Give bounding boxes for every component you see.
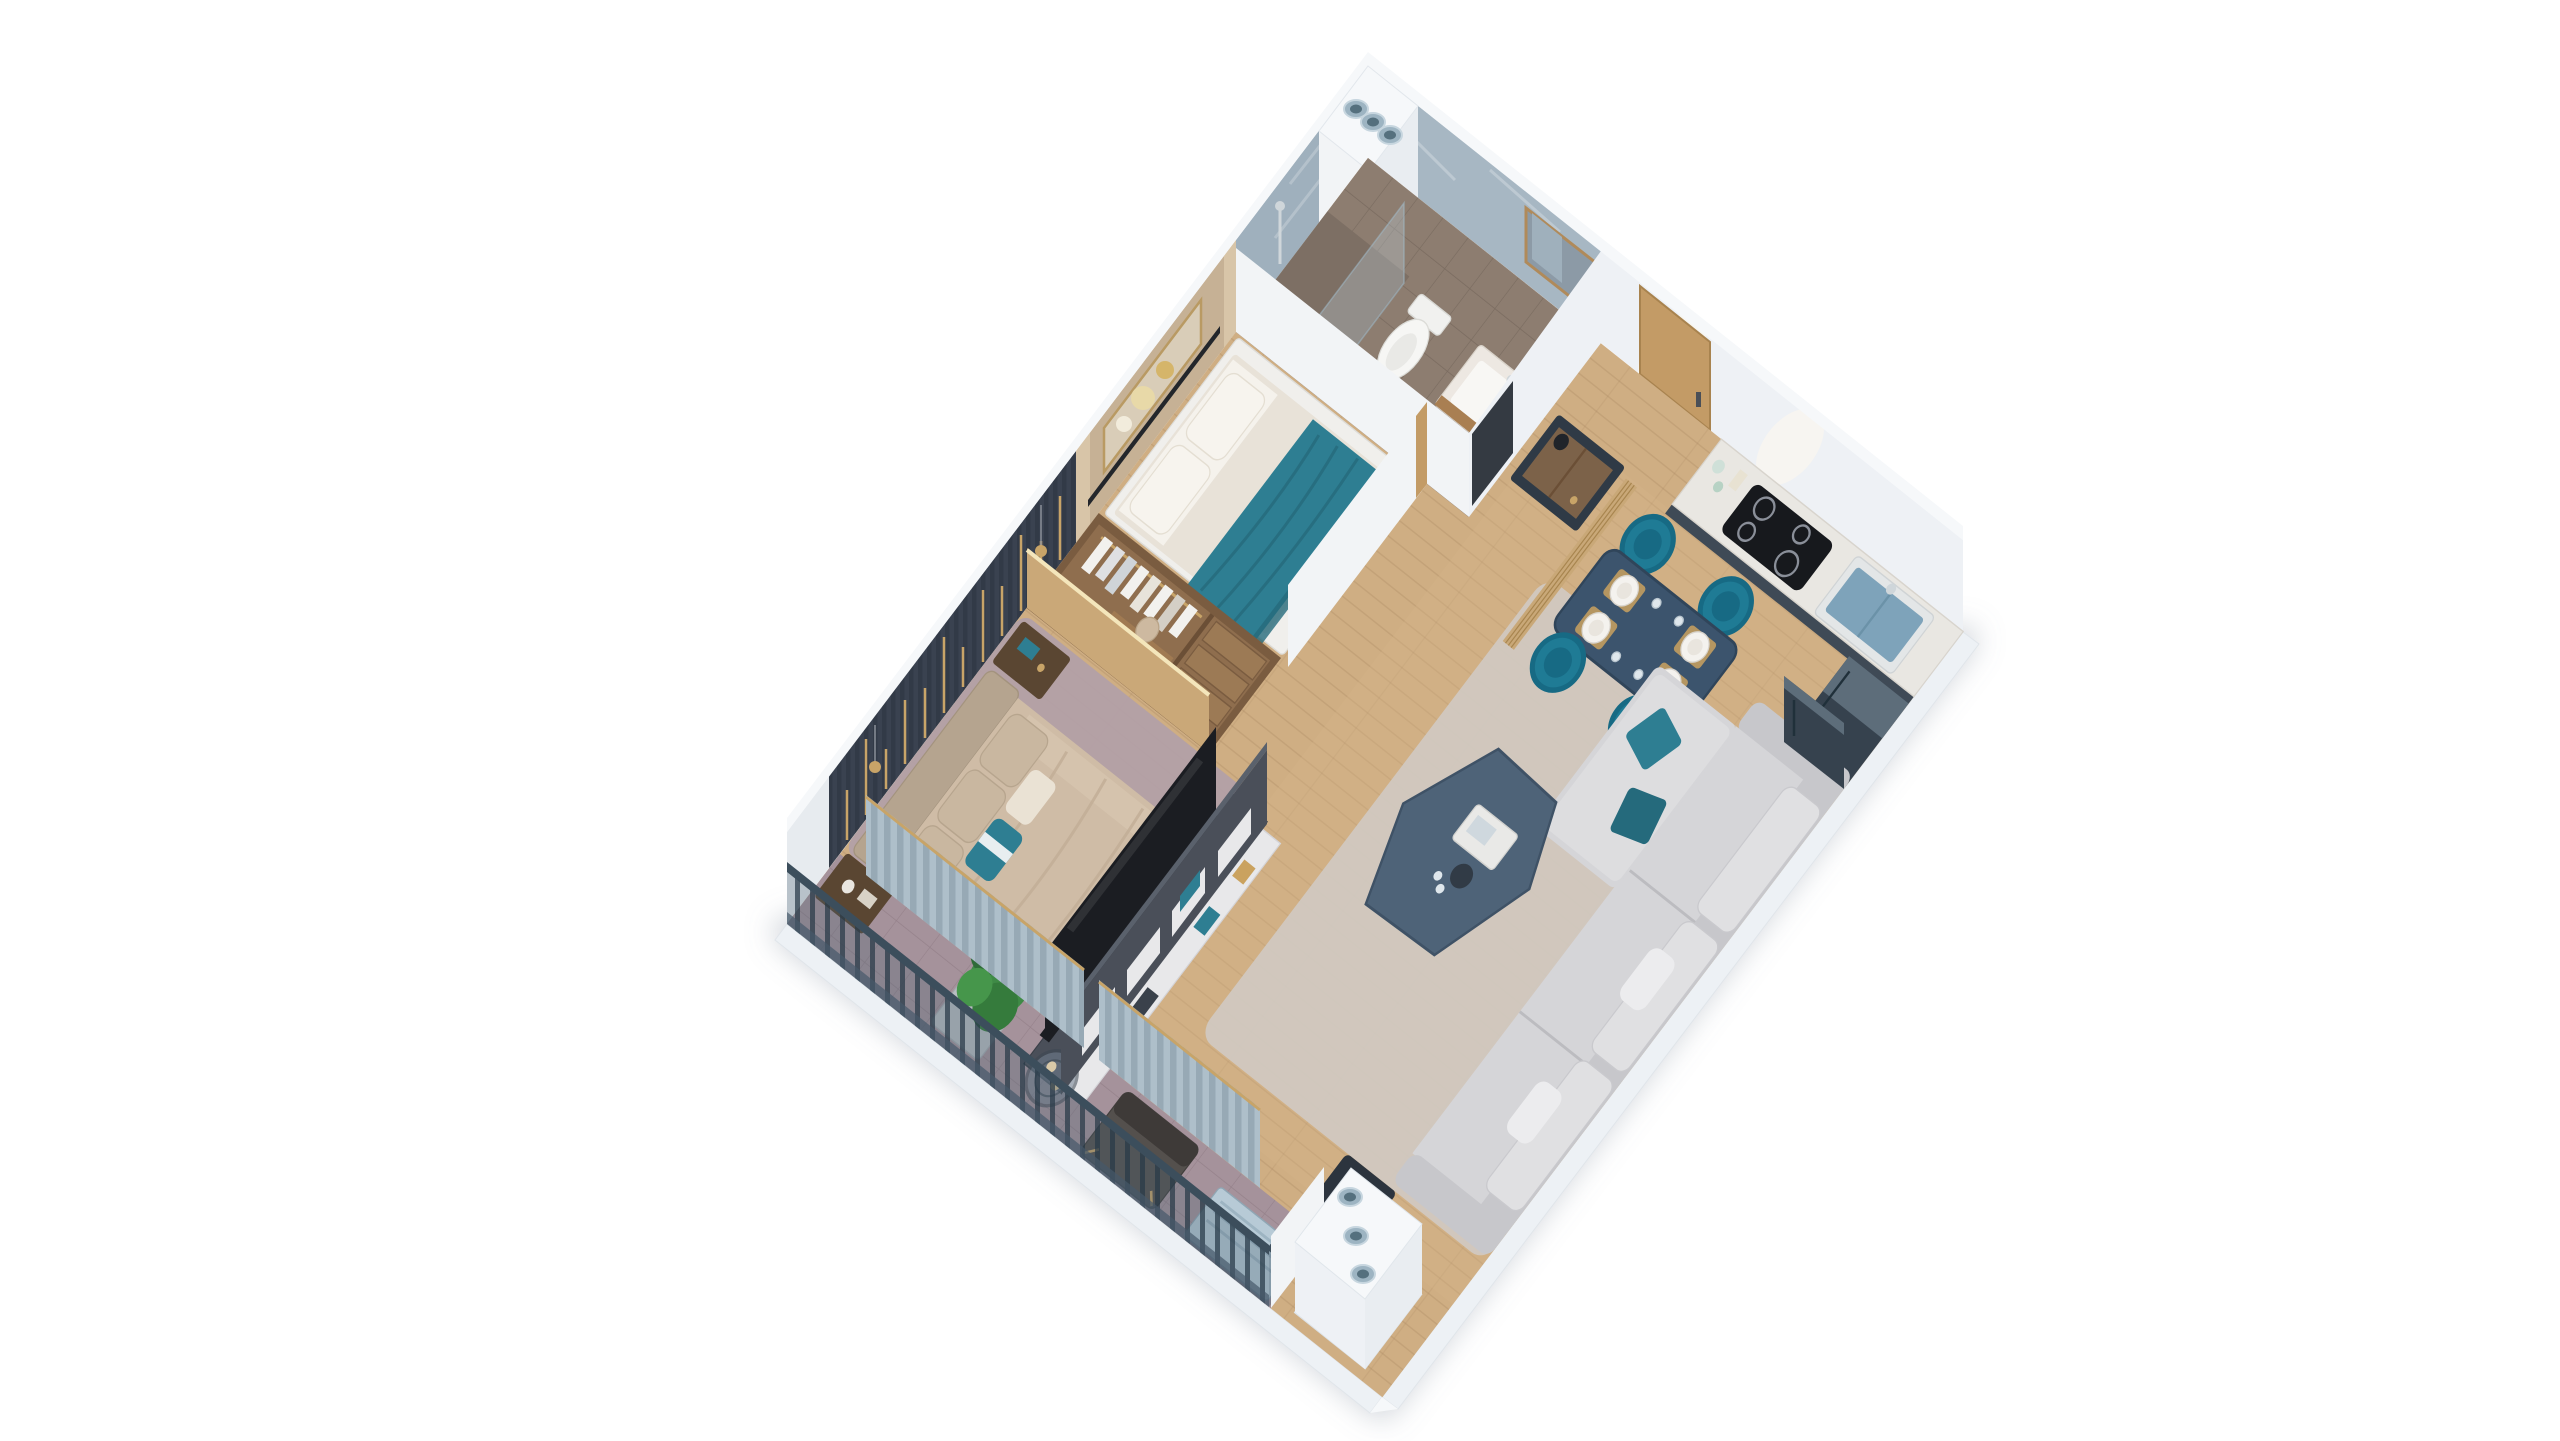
shower-head-icon — [1275, 201, 1285, 211]
door-handle-icon — [1696, 392, 1701, 407]
floorplan-render: 3D isometric apartment floor plan render — [0, 0, 2560, 1441]
floorplan-stage: 3D isometric apartment floor plan render — [0, 0, 2560, 1441]
oak-jamb — [1416, 402, 1427, 498]
